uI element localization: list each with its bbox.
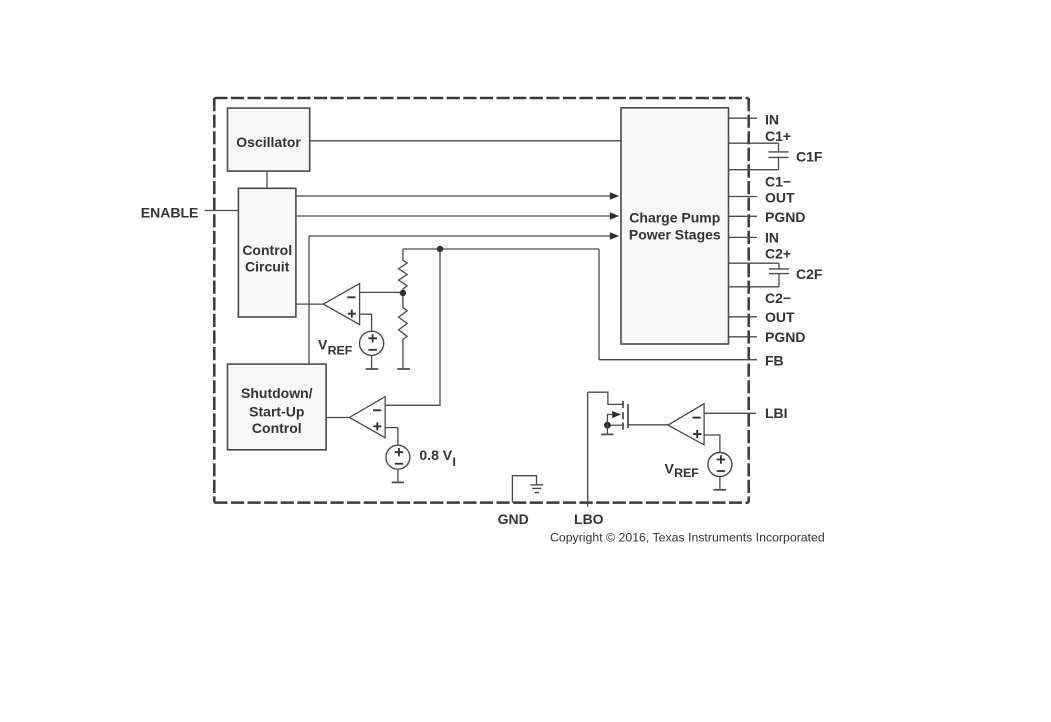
- svg-text:Oscillator: Oscillator: [236, 134, 301, 150]
- svg-text:I: I: [453, 455, 456, 469]
- svg-text:V: V: [665, 460, 675, 476]
- svg-text:Control: Control: [242, 242, 292, 258]
- svg-text:Start-Up: Start-Up: [249, 404, 304, 420]
- svg-text:FB: FB: [765, 352, 784, 368]
- svg-text:Charge Pump: Charge Pump: [629, 209, 720, 225]
- svg-text:C2F: C2F: [796, 266, 823, 282]
- svg-text:C2+: C2+: [765, 246, 791, 262]
- svg-text:ENABLE: ENABLE: [141, 204, 199, 220]
- svg-text:REF: REF: [674, 466, 699, 480]
- svg-text:Control: Control: [252, 420, 302, 436]
- svg-text:Copyright © 2016, Texas Instru: Copyright © 2016, Texas Instruments Inco…: [550, 530, 825, 544]
- svg-text:IN: IN: [765, 112, 779, 128]
- svg-text:GND: GND: [498, 511, 529, 527]
- svg-text:OUT: OUT: [765, 309, 795, 325]
- svg-text:C2−: C2−: [765, 290, 791, 306]
- svg-text:0.8 V: 0.8 V: [419, 447, 452, 463]
- svg-text:PGND: PGND: [765, 209, 805, 225]
- svg-text:LBI: LBI: [765, 405, 788, 421]
- svg-text:LBO: LBO: [574, 511, 604, 527]
- svg-text:Shutdown/: Shutdown/: [241, 385, 313, 401]
- svg-text:Power Stages: Power Stages: [629, 227, 721, 243]
- svg-text:PGND: PGND: [765, 329, 805, 345]
- svg-text:IN: IN: [765, 229, 779, 245]
- svg-text:Circuit: Circuit: [245, 259, 290, 275]
- svg-text:C1−: C1−: [765, 174, 791, 190]
- svg-text:OUT: OUT: [765, 189, 795, 205]
- svg-text:C1F: C1F: [796, 149, 823, 165]
- svg-text:REF: REF: [328, 344, 353, 358]
- svg-text:C1+: C1+: [765, 128, 791, 144]
- svg-text:V: V: [318, 336, 328, 352]
